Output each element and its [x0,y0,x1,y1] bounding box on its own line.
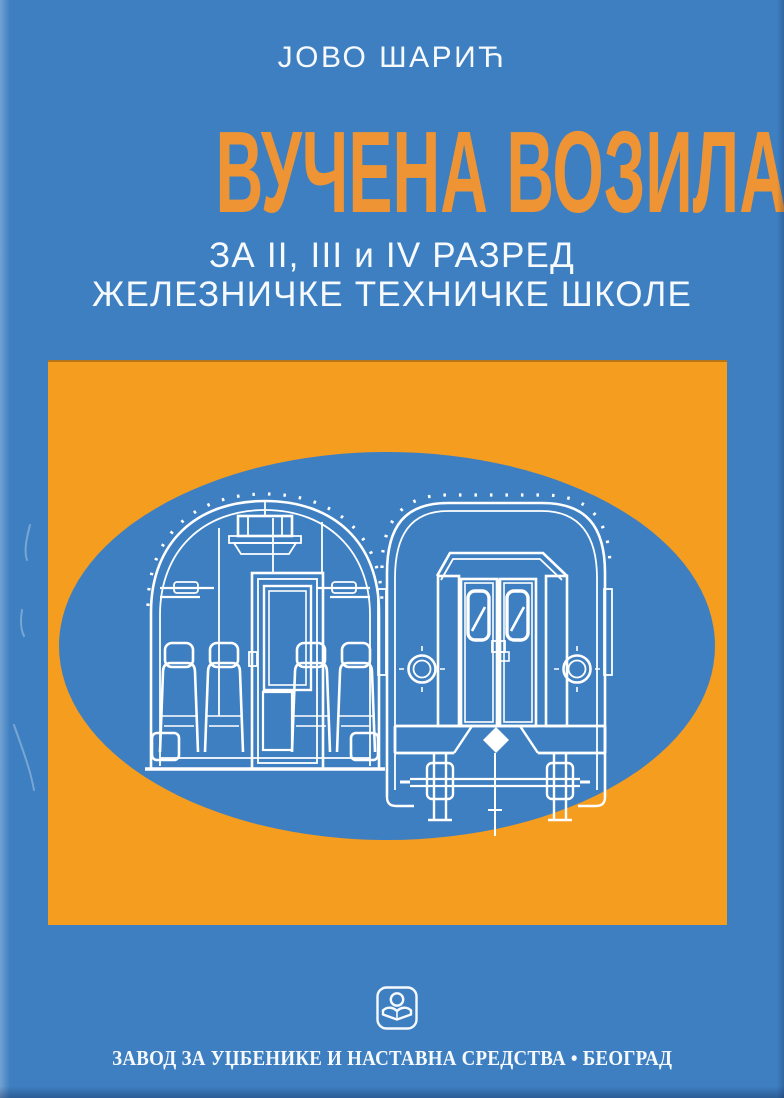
publisher-imprint-text: ЗАВОД ЗА УЏБЕНИКЕ И НАСТАВНА СРЕДСТВА • … [112,1046,672,1071]
cover-illustration [48,360,727,925]
book-title: ВУЧЕНА ВОЗИЛА [0,114,784,230]
subtitle-line-1: ЗА II, III и IV РАЗРЕД [0,236,784,275]
author-name: ЈОВО ШАРИЋ [0,43,784,73]
publisher-imprint: ЗАВОД ЗА УЏБЕНИКЕ И НАСТАВНА СРЕДСТВА • … [0,1046,784,1071]
cover-illustration-panel [48,360,727,925]
subtitle-line-2: ЖЕЛЕЗНИЧКЕ ТЕХНИЧКЕ ШКОЛЕ [0,275,784,314]
subtitle: ЗА II, III и IV РАЗРЕД ЖЕЛЕЗНИЧКЕ ТЕХНИЧ… [0,236,784,314]
publisher-logo-icon [373,984,421,1032]
book-title-text: ВУЧЕНА ВОЗИЛА [216,114,784,230]
page-edge-bottom [0,1086,784,1098]
book-cover: ЈОВО ШАРИЋ ВУЧЕНА ВОЗИЛА ЗА II, III и IV… [0,0,784,1098]
